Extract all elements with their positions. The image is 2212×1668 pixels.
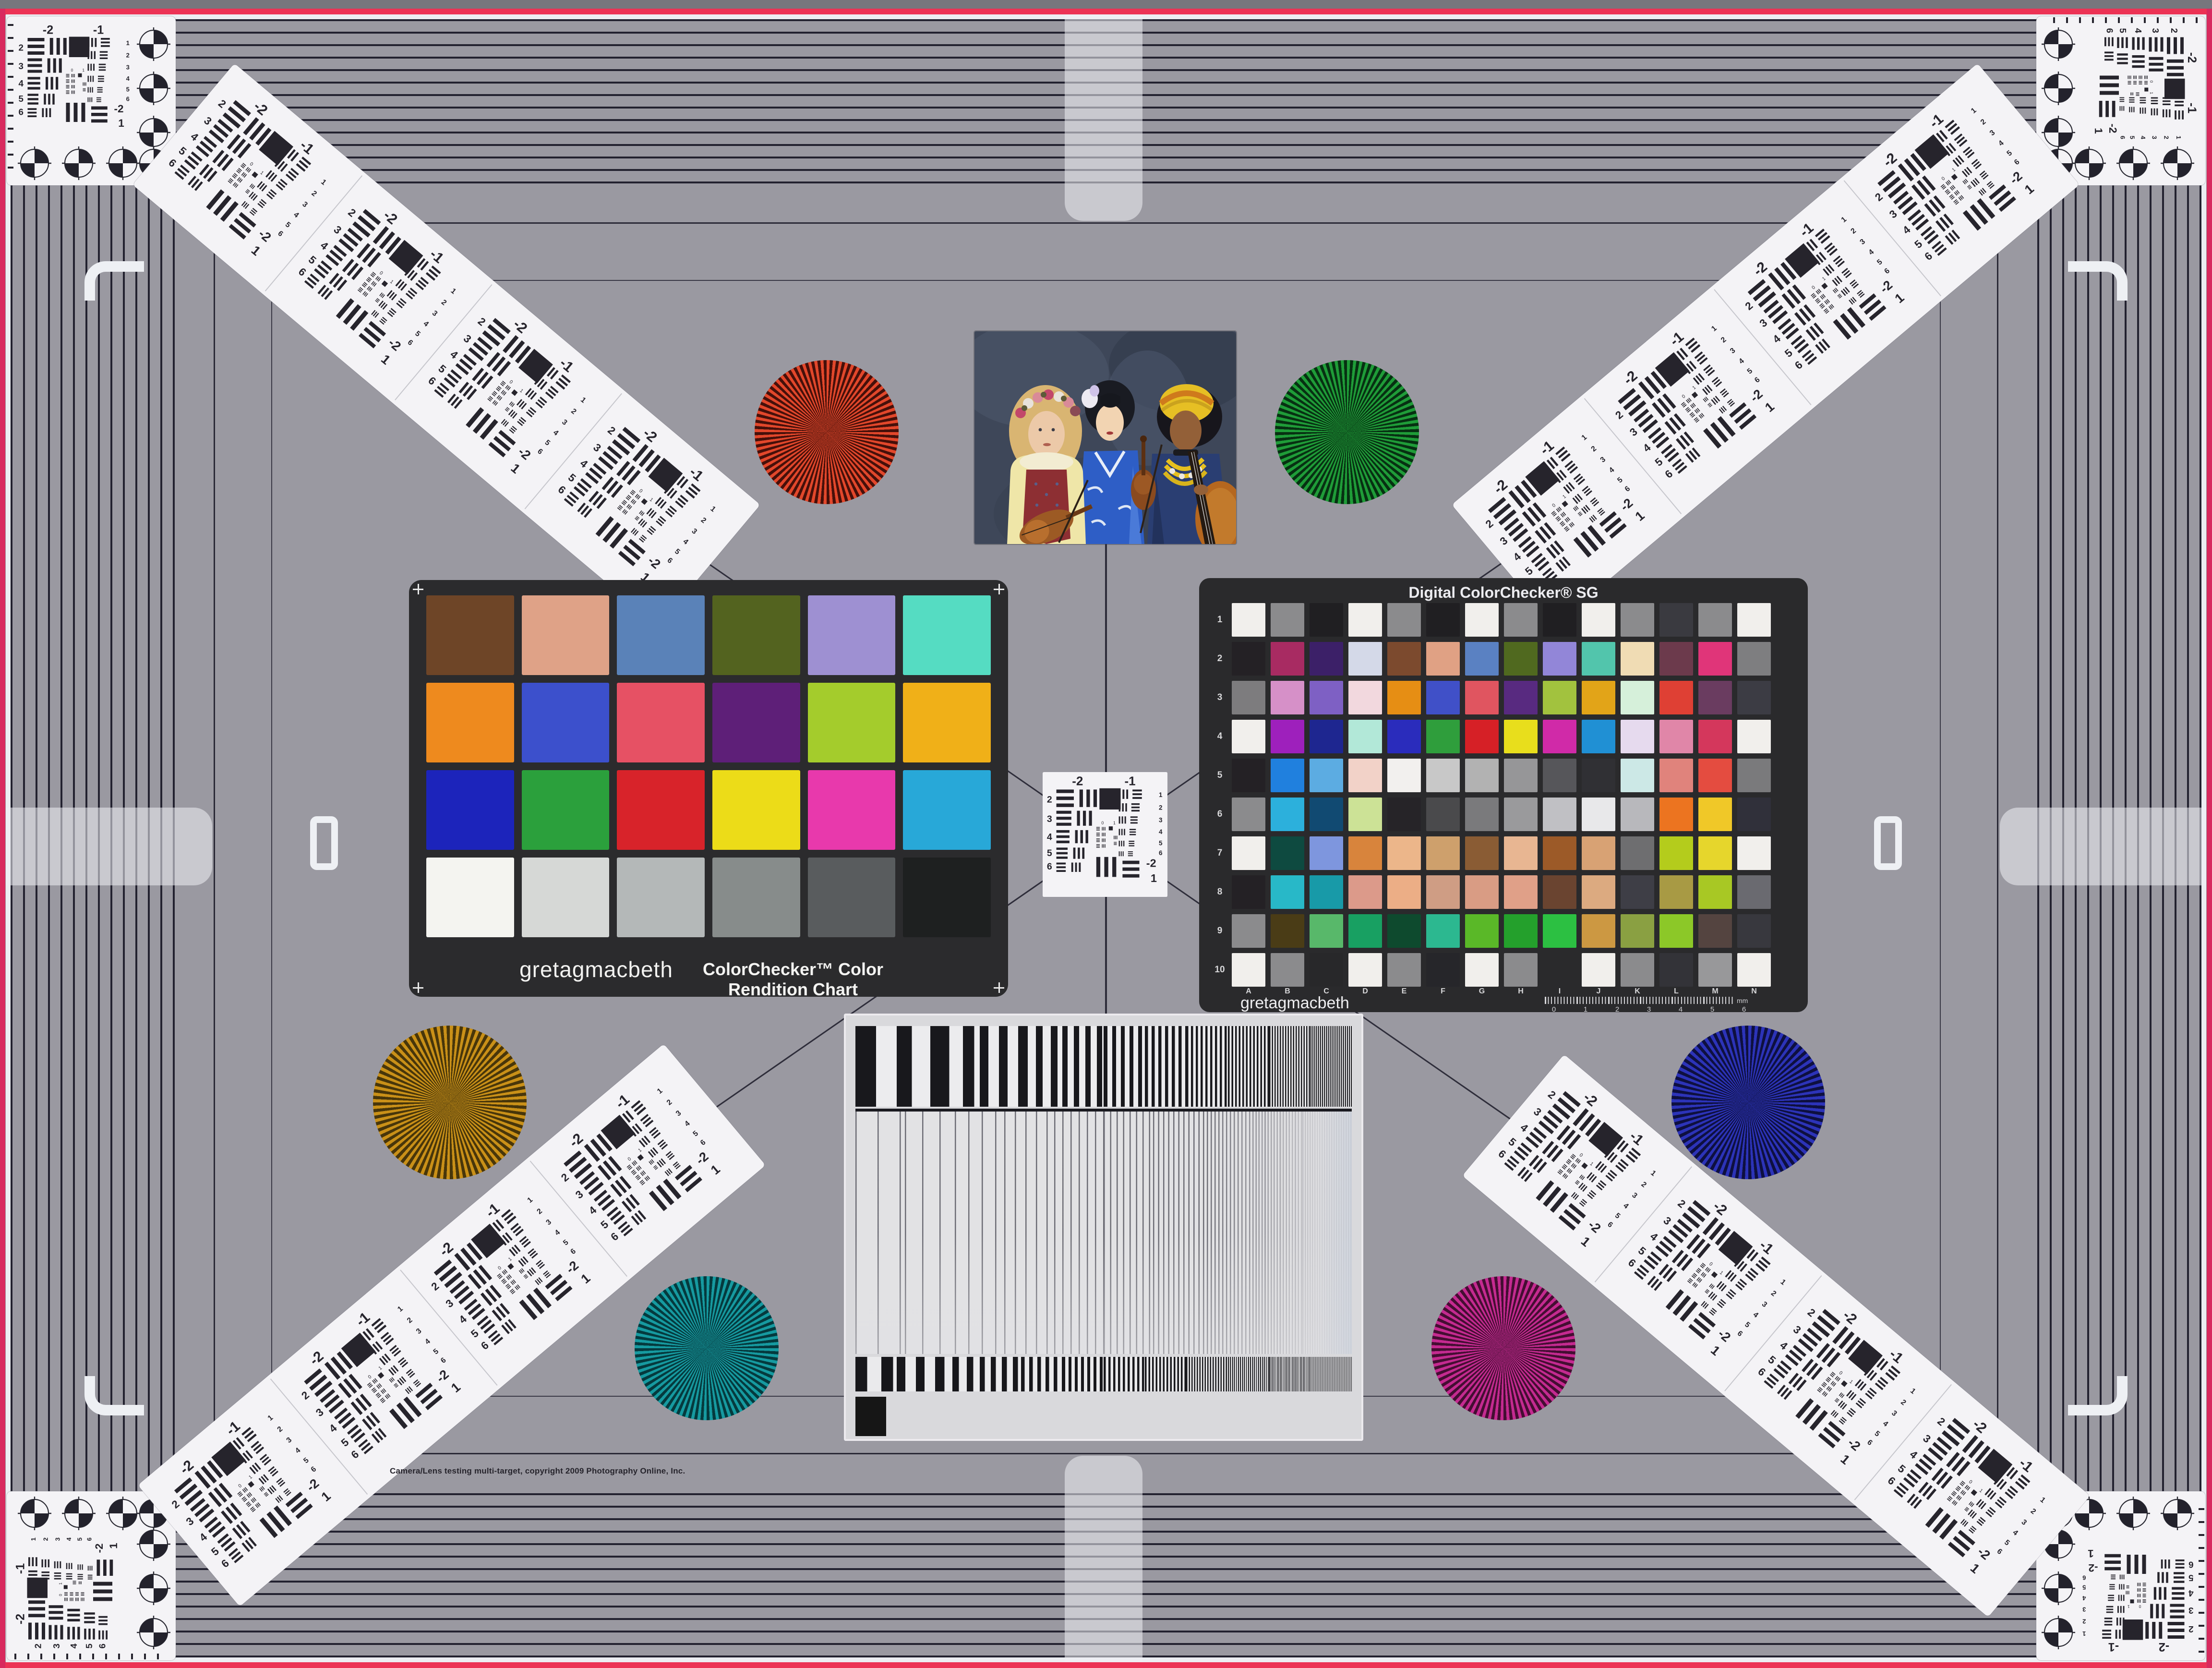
sg-patch <box>1271 603 1304 637</box>
bar-segment <box>855 1357 897 1391</box>
color-patch <box>426 595 514 675</box>
bar-segment <box>1310 1026 1352 1107</box>
corner-card-top-right <box>2036 16 2205 185</box>
sg-brand: gretagmacbeth <box>1240 994 1349 1013</box>
sg-patch <box>1504 875 1538 909</box>
sg-patch <box>1737 720 1771 753</box>
sg-patch <box>1387 836 1421 870</box>
sg-patch <box>1698 836 1732 870</box>
sg-patch <box>1582 681 1615 714</box>
bar-segment <box>1310 1357 1352 1391</box>
sg-ruler-numbers: 0123456 <box>1538 1005 1760 1014</box>
sg-patch <box>1310 759 1343 792</box>
bar-segment <box>1269 1357 1310 1391</box>
three-musicians-photo <box>974 331 1236 544</box>
sg-ruler-number: 1 <box>1570 1005 1601 1014</box>
sg-patch <box>1310 642 1343 676</box>
sg-patch <box>1310 953 1343 987</box>
square-wave-strip-bottom <box>855 1357 1352 1391</box>
sg-patch <box>1737 642 1771 676</box>
sg-col-label: I <box>1543 987 1576 996</box>
sg-patch <box>1271 642 1304 676</box>
sg-patch <box>1465 798 1499 831</box>
bar-segment <box>1104 1112 1153 1354</box>
sg-patch <box>1737 875 1771 909</box>
sg-patch <box>1504 836 1538 870</box>
bar-segment <box>938 1026 979 1107</box>
field-corner-bracket-tl <box>84 261 144 301</box>
bottom-center-registration-bar <box>1065 1456 1142 1662</box>
sg-patch <box>1737 603 1771 637</box>
sg-patch <box>1659 953 1693 987</box>
sg-patch <box>1737 681 1771 714</box>
sg-patch <box>1387 603 1421 637</box>
center-resolution-chart <box>1043 772 1167 897</box>
sg-patch <box>1232 798 1265 831</box>
color-patch <box>903 770 991 850</box>
sg-patch <box>1582 914 1615 948</box>
sg-patch <box>1621 953 1654 987</box>
sg-patch <box>1348 836 1382 870</box>
sg-patch <box>1543 681 1576 714</box>
sg-patch <box>1543 720 1576 753</box>
gold-siemens-star <box>373 1026 527 1179</box>
color-patch <box>522 595 610 675</box>
bar-segment <box>1054 1112 1104 1354</box>
sg-patch <box>1737 798 1771 831</box>
bar-segment <box>1104 1357 1145 1391</box>
sg-patch <box>1232 875 1265 909</box>
sg-patch <box>1621 798 1654 831</box>
sg-patch <box>1543 759 1576 792</box>
field-corner-bracket-br <box>2068 1376 2128 1415</box>
colorchecker-grid <box>426 595 991 937</box>
sg-patch <box>1698 642 1732 676</box>
sg-col-label: N <box>1737 987 1771 996</box>
plus-fiducial-icon <box>994 584 1004 594</box>
sg-patch <box>1387 720 1421 753</box>
sg-patch <box>1348 603 1382 637</box>
sg-patch <box>1504 759 1538 792</box>
sg-patch <box>1659 642 1693 676</box>
sg-patch <box>1621 759 1654 792</box>
sg-patch <box>1504 681 1538 714</box>
bar-segment <box>1186 1026 1227 1107</box>
sg-patch <box>1426 836 1460 870</box>
pink-edge-bottom <box>0 1662 2212 1668</box>
plus-fiducial-icon <box>994 982 1004 993</box>
color-patch <box>522 683 610 762</box>
corner-card-bottom-left <box>7 1491 176 1660</box>
magenta-siemens-star <box>1431 1276 1575 1420</box>
sg-patch <box>1659 798 1693 831</box>
field-corner-bracket-bl <box>84 1376 144 1415</box>
sg-patch <box>1426 759 1460 792</box>
sg-patch <box>1504 642 1538 676</box>
sg-patch <box>1737 914 1771 948</box>
sg-patch <box>1310 836 1343 870</box>
field-mid-mark-right <box>1874 816 1902 870</box>
pink-edge-right <box>2207 9 2212 1668</box>
sg-row-label: 4 <box>1213 720 1227 753</box>
sg-patch <box>1698 759 1732 792</box>
sg-patch <box>1310 720 1343 753</box>
sg-patch <box>1504 720 1538 753</box>
color-patch <box>712 770 800 850</box>
sg-patch <box>1310 914 1343 948</box>
sg-col-label: K <box>1621 987 1654 996</box>
sg-patch <box>1737 759 1771 792</box>
sg-patch <box>1621 642 1654 676</box>
sg-patch <box>1621 603 1654 637</box>
sg-patch <box>1271 759 1304 792</box>
color-patch <box>712 858 800 937</box>
sg-patch <box>1582 953 1615 987</box>
sg-patch <box>1582 759 1615 792</box>
sg-patch <box>1387 681 1421 714</box>
sg-ruler-number: 3 <box>1633 1005 1665 1014</box>
sg-patch <box>1659 914 1693 948</box>
color-patch <box>903 858 991 937</box>
sg-ruler-number: 6 <box>1728 1005 1760 1014</box>
sg-patch <box>1426 914 1460 948</box>
sg-patch <box>1543 914 1576 948</box>
sg-col-label: F <box>1426 987 1460 996</box>
teal-siemens-star <box>635 1276 779 1420</box>
plus-fiducial-icon <box>413 982 423 993</box>
sg-patch <box>1621 875 1654 909</box>
sg-patch <box>1232 681 1265 714</box>
sg-patch <box>1426 681 1460 714</box>
sg-row-label: 3 <box>1213 681 1227 714</box>
sg-row-label: 8 <box>1213 875 1227 909</box>
sg-patch <box>1426 603 1460 637</box>
sg-patch <box>1387 759 1421 792</box>
sg-patch <box>1621 720 1654 753</box>
color-patch <box>426 858 514 937</box>
color-patch <box>617 595 705 675</box>
sg-patch <box>1387 798 1421 831</box>
sg-patch <box>1543 875 1576 909</box>
color-patch <box>522 770 610 850</box>
sg-patch <box>1582 603 1615 637</box>
sg-ruler-number: 5 <box>1696 1005 1728 1014</box>
sg-patch <box>1698 953 1732 987</box>
color-patch <box>712 683 800 762</box>
sg-patch <box>1348 914 1382 948</box>
sg-patch <box>1543 836 1576 870</box>
sg-patch <box>1271 681 1304 714</box>
bar-segment <box>1302 1112 1352 1354</box>
sg-patch <box>1543 798 1576 831</box>
sg-patch <box>1698 875 1732 909</box>
sg-patch <box>1465 681 1499 714</box>
black-end-square <box>855 1397 886 1436</box>
bar-segment <box>1104 1026 1145 1107</box>
sg-patch <box>1348 798 1382 831</box>
color-patch <box>712 595 800 675</box>
sg-patch <box>1543 953 1576 987</box>
colorchecker-sg-chart: Digital ColorChecker® SG 12345678910 ABC… <box>1199 578 1808 1012</box>
sg-patch <box>1582 798 1615 831</box>
sg-patch <box>1232 953 1265 987</box>
copyright-text: Camera/Lens testing multi-target, copyri… <box>390 1466 685 1476</box>
bar-segment <box>905 1112 954 1354</box>
sg-patch <box>1348 642 1382 676</box>
sg-patch <box>1504 914 1538 948</box>
sg-patch <box>1659 603 1693 637</box>
sg-patch <box>1465 759 1499 792</box>
colorchecker-title: ColorChecker™ Color Rendition Chart <box>678 959 908 1000</box>
sg-patch <box>1582 836 1615 870</box>
sg-patch <box>1348 759 1382 792</box>
sg-patch <box>1271 914 1304 948</box>
sg-patch <box>1582 875 1615 909</box>
sg-ruler-number: 2 <box>1601 1005 1633 1014</box>
sg-patch <box>1426 953 1460 987</box>
sg-grid <box>1232 603 1771 987</box>
test-chart-scene: gretagmacbeth ColorChecker™ Color Rendit… <box>0 9 2212 1668</box>
color-patch <box>617 858 705 937</box>
bar-segment <box>1252 1112 1302 1354</box>
sg-row-label: 7 <box>1213 836 1227 870</box>
color-patch <box>426 770 514 850</box>
bar-segment <box>955 1112 1004 1354</box>
sg-patch <box>1271 720 1304 753</box>
sg-patch <box>1232 914 1265 948</box>
bar-segment <box>1004 1112 1054 1354</box>
sg-patch <box>1465 953 1499 987</box>
bar-segment <box>1021 1026 1062 1107</box>
sg-row-label: 5 <box>1213 759 1227 792</box>
sg-patch <box>1659 681 1693 714</box>
bar-segment <box>855 1112 905 1354</box>
sg-row-label: 9 <box>1213 914 1227 948</box>
bar-segment <box>980 1026 1021 1107</box>
sg-patch <box>1310 798 1343 831</box>
sg-ruler-unit: mm <box>1737 997 1748 1004</box>
sg-patch <box>1465 836 1499 870</box>
sg-patch <box>1698 914 1732 948</box>
bar-segment <box>1062 1026 1104 1107</box>
sg-patch <box>1232 720 1265 753</box>
grayscale-step-wedge <box>855 1397 1352 1436</box>
sg-patch <box>1543 603 1576 637</box>
color-patch <box>903 595 991 675</box>
sg-row-label: 6 <box>1213 798 1227 831</box>
sg-patch <box>1387 642 1421 676</box>
right-center-registration-bar <box>2000 808 2206 885</box>
blue-siemens-star <box>1671 1026 1825 1179</box>
bar-segment <box>897 1026 938 1107</box>
bar-segment <box>1062 1357 1104 1391</box>
sg-patch <box>1621 681 1654 714</box>
sg-patch <box>1387 953 1421 987</box>
sg-patch <box>1348 720 1382 753</box>
sg-ruler-number: 4 <box>1665 1005 1696 1014</box>
sg-patch <box>1426 642 1460 676</box>
bar-segment <box>1145 1357 1186 1391</box>
sg-patch <box>1737 836 1771 870</box>
left-center-registration-bar <box>6 808 212 885</box>
sg-patch <box>1698 798 1732 831</box>
sg-patch <box>1465 642 1499 676</box>
sg-patch <box>1271 875 1304 909</box>
bar-segment <box>1145 1026 1186 1107</box>
sg-row-labels: 12345678910 <box>1213 603 1227 987</box>
sg-patch <box>1232 759 1265 792</box>
sg-row-label: 1 <box>1213 603 1227 637</box>
square-wave-strip-top <box>855 1026 1352 1107</box>
sg-ruler-number: 0 <box>1538 1005 1570 1014</box>
frequency-sweep-card <box>844 1014 1363 1441</box>
sine-sweep-pattern <box>855 1112 1352 1354</box>
bar-segment <box>1269 1026 1310 1107</box>
sg-patch <box>1698 681 1732 714</box>
sg-col-label: D <box>1348 987 1382 996</box>
sg-col-label: G <box>1465 987 1499 996</box>
sg-patch <box>1310 603 1343 637</box>
color-patch <box>522 858 610 937</box>
sg-row-label: 2 <box>1213 642 1227 676</box>
color-patch <box>808 595 896 675</box>
sg-col-label: E <box>1387 987 1421 996</box>
colorchecker-24-chart: gretagmacbeth ColorChecker™ Color Rendit… <box>409 580 1008 997</box>
sg-patch <box>1271 798 1304 831</box>
sg-patch <box>1698 603 1732 637</box>
bar-segment <box>1021 1357 1062 1391</box>
color-patch <box>808 770 896 850</box>
bar-segment <box>938 1357 979 1391</box>
sg-col-label: M <box>1698 987 1732 996</box>
sg-patch <box>1659 836 1693 870</box>
sg-patch <box>1310 875 1343 909</box>
sg-ruler <box>1545 997 1735 1004</box>
bar-segment <box>855 1026 897 1107</box>
sg-patch <box>1348 681 1382 714</box>
green-siemens-star <box>1275 360 1419 504</box>
sg-col-label: J <box>1582 987 1615 996</box>
sg-patch <box>1426 720 1460 753</box>
field-mid-mark-left <box>310 816 338 870</box>
sg-patch <box>1426 875 1460 909</box>
sg-patch <box>1659 720 1693 753</box>
bar-segment <box>1228 1357 1269 1391</box>
sg-patch <box>1504 953 1538 987</box>
color-patch <box>617 770 705 850</box>
sg-patch <box>1426 798 1460 831</box>
bar-segment <box>897 1357 938 1391</box>
sg-patch <box>1387 914 1421 948</box>
color-patch <box>617 683 705 762</box>
bar-segment <box>1186 1357 1227 1391</box>
sg-patch <box>1504 603 1538 637</box>
sg-patch <box>1465 914 1499 948</box>
sg-patch <box>1348 953 1382 987</box>
color-patch <box>808 858 896 937</box>
bar-segment <box>1203 1112 1252 1354</box>
sg-patch <box>1271 836 1304 870</box>
sg-patch <box>1310 681 1343 714</box>
bar-segment <box>1228 1026 1269 1107</box>
sg-row-label: 10 <box>1213 953 1227 987</box>
sg-patch <box>1348 875 1382 909</box>
sg-patch <box>1232 603 1265 637</box>
sg-patch <box>1465 603 1499 637</box>
corner-card-top-left <box>7 16 176 185</box>
sg-patch <box>1465 875 1499 909</box>
pink-edge-left <box>0 9 5 1668</box>
sg-patch <box>1737 953 1771 987</box>
bar-segment <box>1153 1112 1202 1354</box>
sg-patch <box>1387 875 1421 909</box>
sg-patch <box>1232 642 1265 676</box>
sg-patch <box>1582 642 1615 676</box>
sg-patch <box>1659 759 1693 792</box>
sg-patch <box>1465 720 1499 753</box>
bar-segment <box>980 1357 1021 1391</box>
field-corner-bracket-tr <box>2068 261 2128 301</box>
sg-patch <box>1271 953 1304 987</box>
sg-patch <box>1621 836 1654 870</box>
color-patch <box>808 683 896 762</box>
red-siemens-star <box>755 360 899 504</box>
plus-fiducial-icon <box>413 584 423 594</box>
sg-col-label: L <box>1659 987 1693 996</box>
sg-patch <box>1621 914 1654 948</box>
sg-patch <box>1698 720 1732 753</box>
sg-title: Digital ColorChecker® SG <box>1199 584 1808 602</box>
sg-patch <box>1582 720 1615 753</box>
sg-patch <box>1504 798 1538 831</box>
sg-col-label: H <box>1504 987 1538 996</box>
sg-patch <box>1659 875 1693 909</box>
sg-patch <box>1543 642 1576 676</box>
sg-patch <box>1232 836 1265 870</box>
top-center-registration-bar <box>1065 14 1142 221</box>
color-patch <box>426 683 514 762</box>
color-patch <box>903 683 991 762</box>
